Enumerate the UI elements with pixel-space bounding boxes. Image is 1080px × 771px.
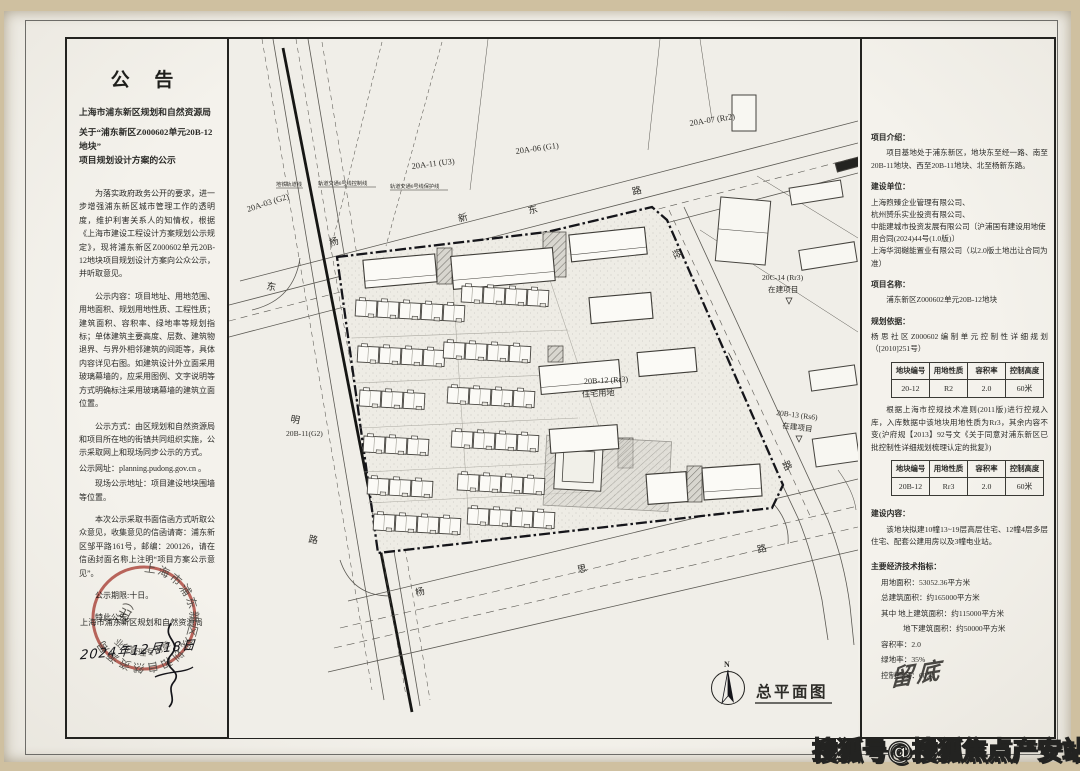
table-header: 控制高度 [1006, 460, 1044, 477]
north-arrow-label: N [724, 660, 730, 669]
rail-note-3: 轨道交通6号线保护线 [390, 182, 439, 190]
scanned-notice-page: { "notice": { "title": "公 告", "org": "上海… [0, 0, 1080, 771]
builder-heading: 建设单位： [871, 181, 1048, 193]
table-header: 用地性质 [930, 362, 968, 379]
builder-item: 中能建城市投资发展有限公司〔沪浦国有建设用地使用合同(2024)44号(1.0版… [871, 221, 1048, 245]
plot-label-20b11: 20B-11(G2) [286, 429, 323, 438]
project-name-text: 浦东新区Z000602单元20B-12地块 [871, 294, 1048, 306]
notice-web-line: 公示网址：planning.pudong.gov.cn 。 [79, 462, 215, 475]
notice-subject-line2: 项目规划设计方案的公示 [79, 153, 215, 167]
content-heading: 建设内容： [871, 508, 1048, 520]
intro-heading: 项目介绍： [871, 132, 1048, 144]
table-cell: 20-12 [892, 380, 930, 398]
indicator-item: 地下建筑面积：约50000平方米 [903, 623, 1048, 635]
table-cell: 2.0 [968, 380, 1006, 398]
notice-paragraph-1: 为落实政府政务公开的要求，进一步增强浦东新区城市管理工作的透明度，维护利害关系人… [79, 187, 215, 281]
plan-title: 总平面图 [756, 682, 828, 701]
project-name-heading: 项目名称： [871, 279, 1048, 291]
plot-label-20c14-line2: 在建项目 [768, 284, 798, 294]
basis-note: 根据上海市控规技术准则(2011版)进行控规入库，入库数据中该地块用地性质为Rr… [871, 404, 1048, 454]
table-cell: 2.0 [968, 478, 1006, 496]
plot-label-20b12-line2: 住宅用地 [582, 387, 615, 399]
info-panel: 项目介绍： 项目基地处于浦东新区，地块东至经一路、南至20B-11地块、西至20… [862, 37, 1056, 739]
rail-note-2: 轨道交通6号线控制线 [318, 179, 367, 187]
plan-table-adjusted: 地块编号 用地性质 容积率 控制高度 20B-12 Rr3 2.0 60米 [891, 460, 1044, 496]
table-cell: R2 [930, 380, 968, 398]
plot-label-20c14-line1: 20C-14 (Rr3) [762, 273, 804, 282]
table-cell: 20B-12 [892, 478, 930, 496]
intro-text: 项目基地处于浦东新区，地块东至经一路、南至20B-11地块、西至20B-11地块… [871, 147, 1048, 172]
notice-site-line: 现场公示地址：项目建设地块围墙等位置。 [79, 477, 215, 504]
notice-paragraph-3: 公示方式：由区规划和自然资源局和项目所在地的街镇共同组织实施，公示采取网上和现场… [79, 420, 215, 460]
plan-table-original: 地块编号 用地性质 容积率 控制高度 20-12 R2 2.0 60米 [891, 362, 1044, 398]
table-header: 用地性质 [930, 460, 968, 477]
indicator-item: 总建筑面积：约165000平方米 [881, 592, 1048, 604]
handwritten-note: 留底 [890, 665, 944, 686]
indicator-item: 容积率：2.0 [881, 639, 1048, 651]
table-header: 控制高度 [1006, 362, 1044, 379]
table-header: 地块编号 [892, 362, 930, 379]
table-cell: 60米 [1006, 380, 1044, 398]
table-header: 容积率 [968, 460, 1006, 477]
content-text: 该地块拟建10幢13~19层高层住宅、12幢4层多层住宅、配套公建用房以及3幢电… [871, 524, 1048, 549]
svg-text:明: 明 [289, 414, 300, 426]
table-cell: 60米 [1006, 478, 1044, 496]
builder-list: 上海煦臻企业管理有限公司、 杭州赟乐实业投资有限公司、 中能建城市投资发展有限公… [871, 197, 1048, 270]
site-plan-map: 20A-07 (Rr2) 20A-06 (G1) 20A-11 (U3) 20A… [229, 39, 858, 738]
builder-item: 杭州赟乐实业投资有限公司、 [871, 209, 1048, 221]
table-cell: Rr3 [930, 478, 968, 496]
builder-item: 上海华润樾能置业有限公司（以2.0版土地出让合同为准） [871, 245, 1048, 269]
notice-subject-line1: 关于“浦东新区Z000602单元20B-12地块” [79, 125, 215, 153]
indicator-item: 用地面积：53052.36平方米 [881, 577, 1048, 589]
basis-heading: 规划依据： [871, 316, 1048, 328]
notice-org: 上海市浦东新区规划和自然资源局 [79, 106, 215, 119]
notice-paragraph-2: 公示内容：项目地址、用地范围、用地面积、规划用地性质、工程性质；建筑面积、容积率… [79, 290, 215, 411]
notice-panel: 公 告 上海市浦东新区规划和自然资源局 关于“浦东新区Z000602单元20B-… [67, 39, 226, 737]
handwritten-signature [141, 619, 201, 709]
table-header: 容积率 [968, 362, 1006, 379]
table-header: 地块编号 [892, 460, 930, 477]
indicators-heading: 主要经济技术指标： [871, 561, 1048, 573]
rail-note-1: 地铁轨道线 [276, 180, 302, 188]
basis-text: 杨思社区Z000602编制单元控制性详细规划（[2010]251号） [871, 331, 1048, 356]
notice-title: 公 告 [79, 65, 215, 92]
indicator-item: 其中 地上建筑面积：约115000平方米 [881, 608, 1048, 620]
builder-item: 上海煦臻企业管理有限公司、 [871, 197, 1048, 209]
watermark-text: 搜狐号@搜狐焦点产安站 [812, 731, 1080, 767]
notice-subject: 关于“浦东新区Z000602单元20B-12地块” 项目规划设计方案的公示 [79, 125, 215, 167]
